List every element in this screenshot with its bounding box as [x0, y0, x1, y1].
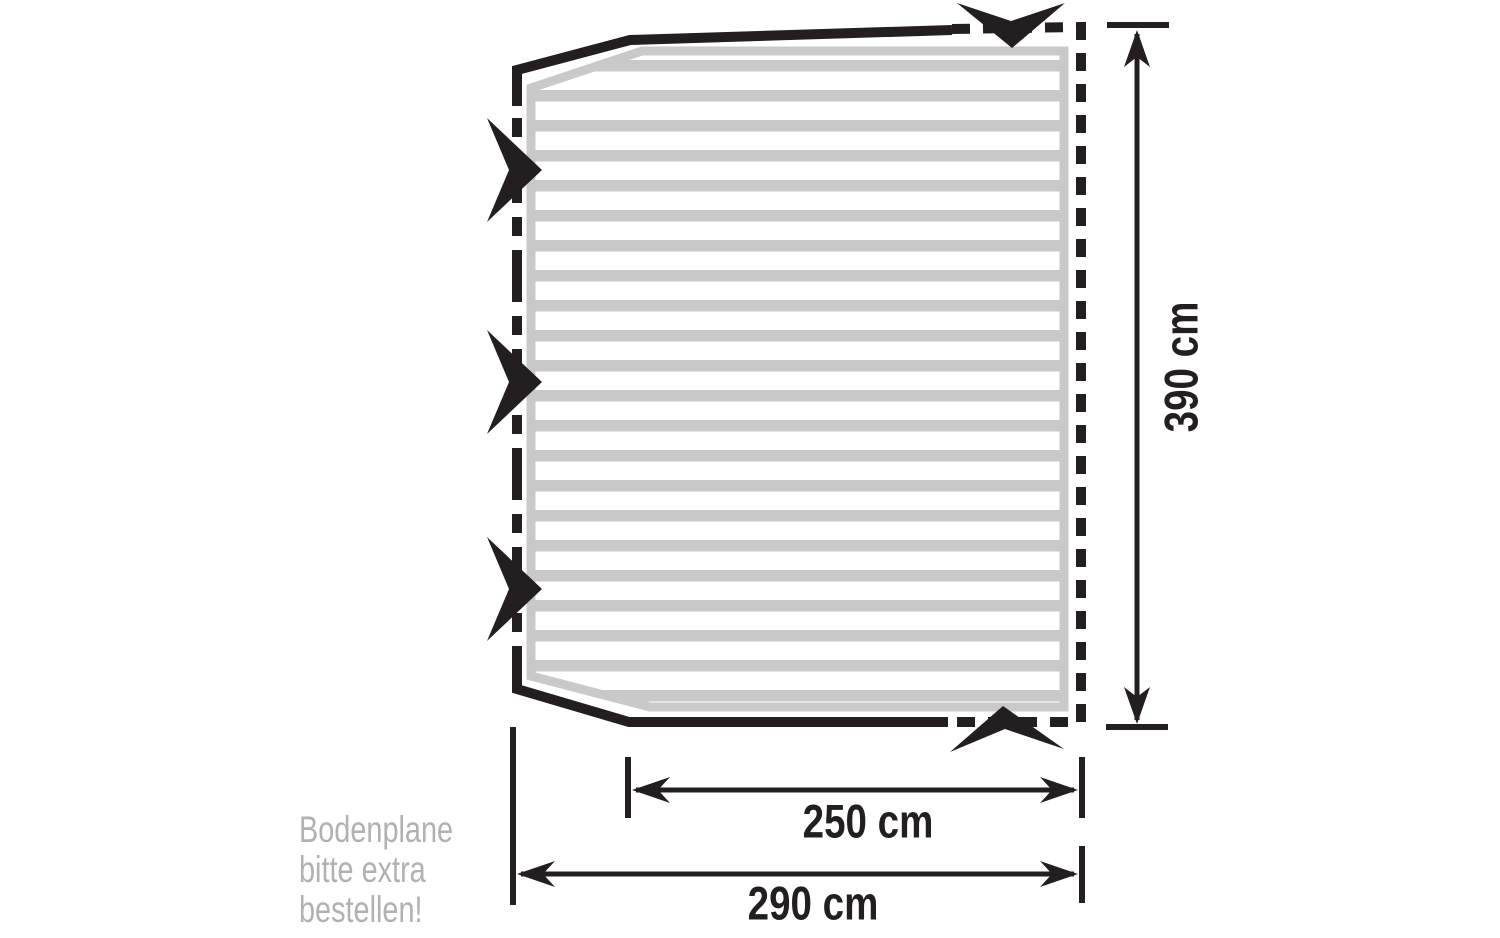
groundsheet-floor — [531, 51, 1064, 707]
groundsheet-striped-area — [531, 51, 1064, 707]
note-line-2: bitte extra — [299, 850, 453, 890]
bottom-chevron-marker — [950, 706, 1064, 752]
groundsheet-note: Bodenplane bitte extra bestellen! — [299, 810, 453, 930]
dimension-label-inner-width: 250 cm — [803, 794, 934, 849]
diagram-graphics — [0, 0, 1500, 938]
note-line-3: bestellen! — [299, 890, 453, 930]
dimension-label-outer-width: 290 cm — [748, 876, 879, 931]
dimension-label-height: 390 cm — [1154, 302, 1209, 433]
note-line-1: Bodenplane — [299, 810, 453, 850]
groundsheet-diagram: 250 cm 290 cm 390 cm Bodenplane bitte ex… — [0, 0, 1500, 938]
